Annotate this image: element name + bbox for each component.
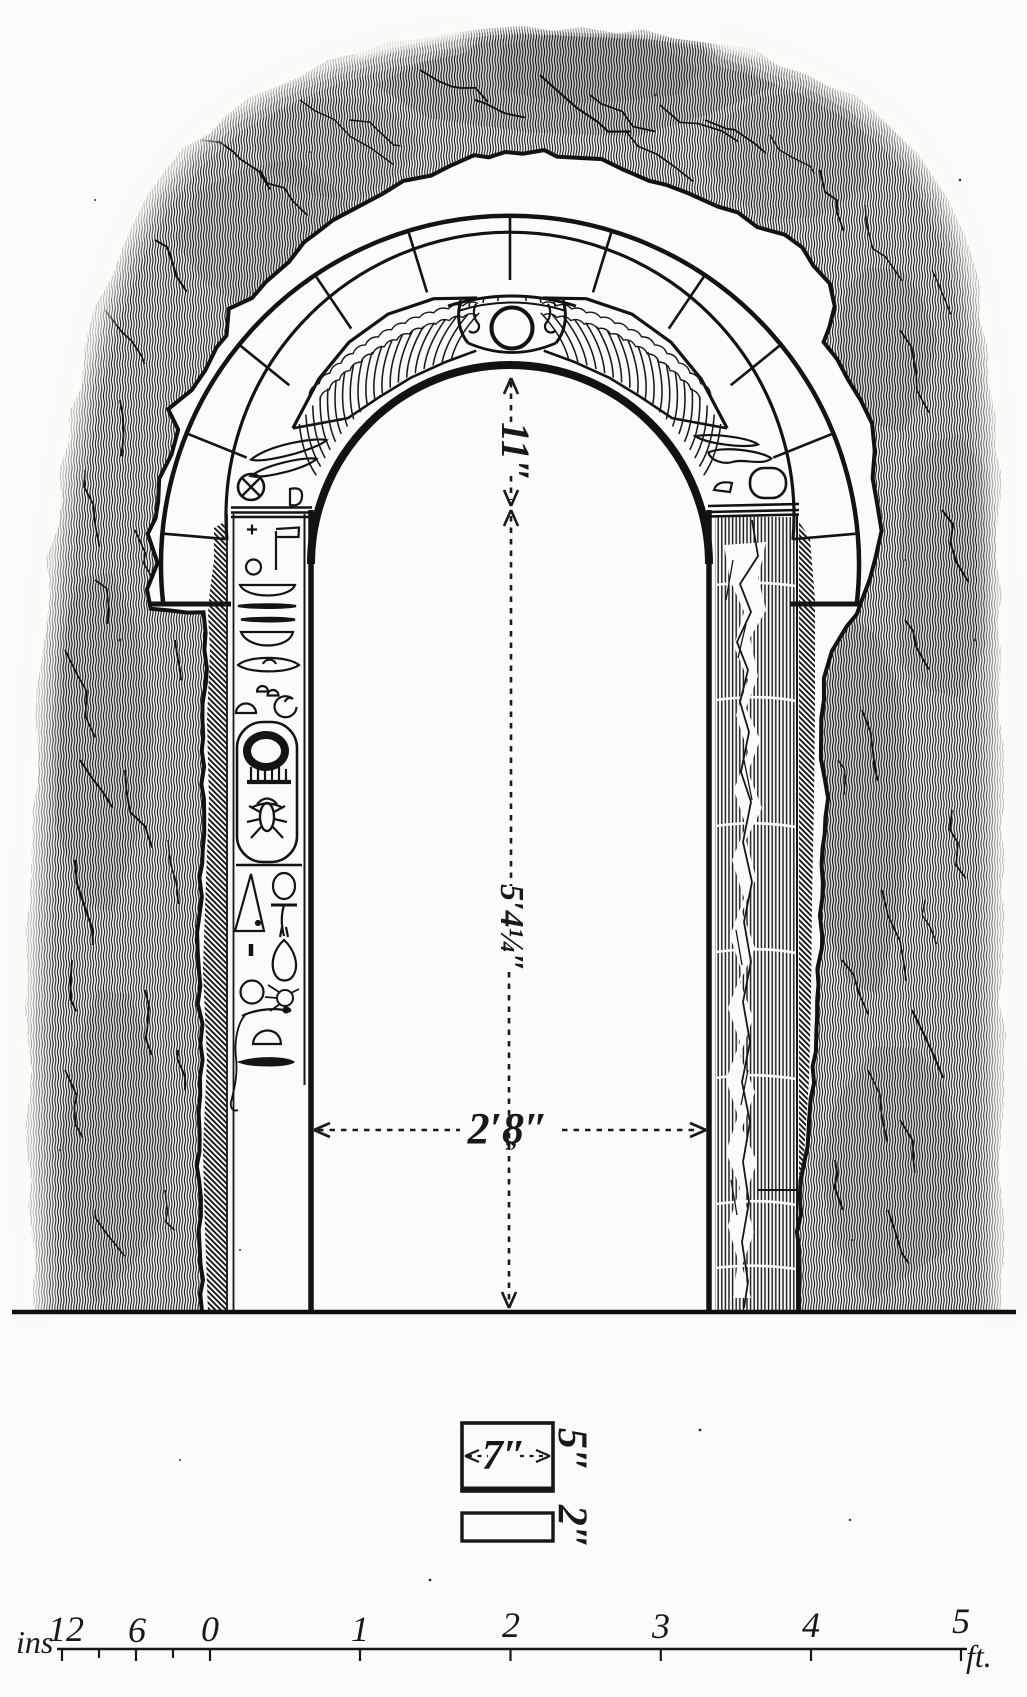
svg-text:3: 3 xyxy=(651,1606,670,1646)
svg-text:4: 4 xyxy=(802,1605,820,1645)
svg-text:ins: ins xyxy=(16,1624,53,1660)
svg-text:2″: 2″ xyxy=(548,1504,594,1549)
svg-text:5″: 5″ xyxy=(548,1428,594,1472)
svg-text:7″: 7″ xyxy=(482,1433,526,1479)
svg-text:ft.: ft. xyxy=(966,1638,992,1674)
svg-text:5′4¼″: 5′4¼″ xyxy=(493,884,530,972)
svg-text:12: 12 xyxy=(48,1609,84,1649)
svg-text:6: 6 xyxy=(128,1610,146,1650)
svg-text:2: 2 xyxy=(502,1605,520,1645)
svg-text:0: 0 xyxy=(201,1609,219,1649)
svg-text:„: „ xyxy=(506,1123,519,1152)
svg-text:1: 1 xyxy=(351,1609,369,1649)
svg-text:11″: 11″ xyxy=(493,422,538,482)
svg-text:5: 5 xyxy=(952,1601,970,1641)
